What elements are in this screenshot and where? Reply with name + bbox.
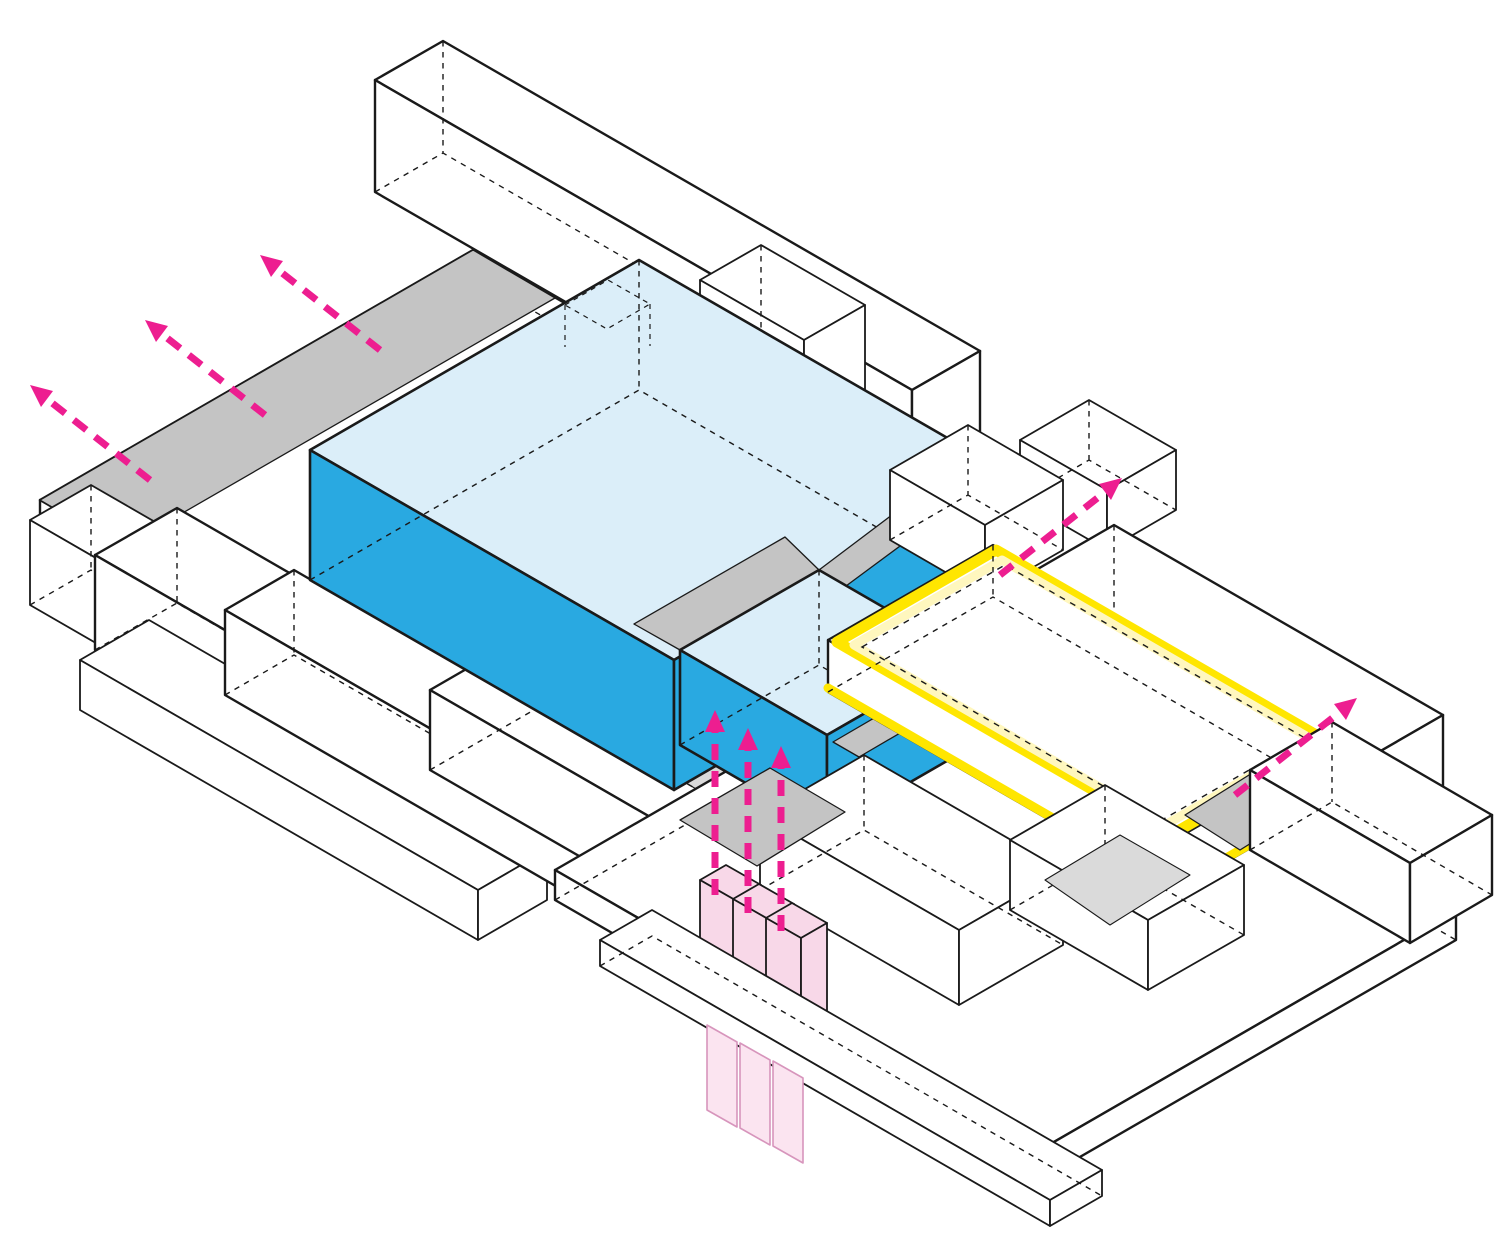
diagram-canvas [0, 0, 1500, 1258]
pink-strip-1 [707, 1025, 737, 1127]
nw-arrow-1-head [30, 385, 53, 407]
pink-strip-2 [740, 1043, 770, 1145]
axonometric-diagram [0, 0, 1500, 1258]
pink-strip-3 [773, 1061, 803, 1163]
nw-arrow-3-head [260, 255, 283, 277]
nw-arrow-2-head [145, 320, 168, 342]
